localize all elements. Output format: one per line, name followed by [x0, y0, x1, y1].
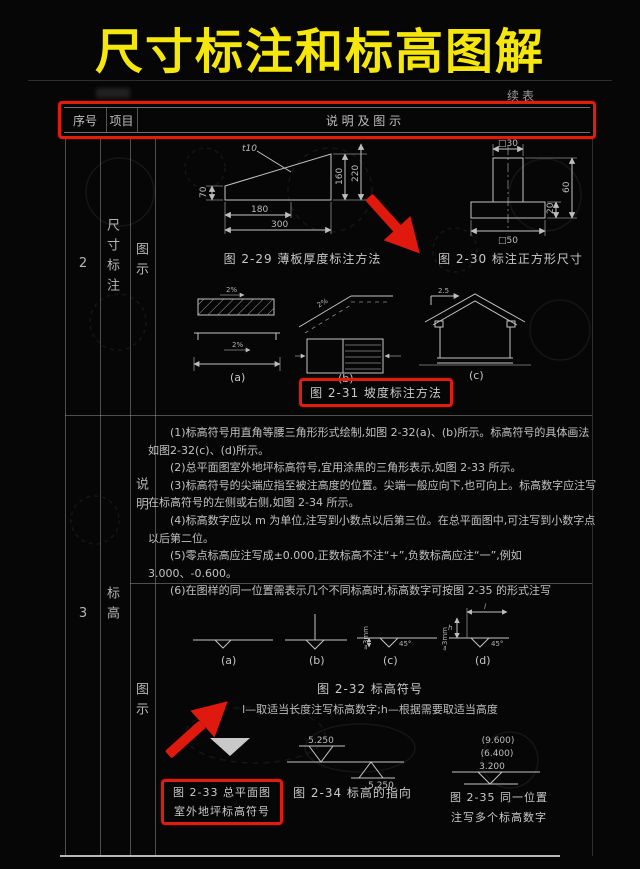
figure-2-32-caption: 图 2-32 标高符号: [290, 680, 450, 697]
multi-elevation-3: 3.200: [479, 762, 505, 772]
elevation-value-top: 5.250: [308, 736, 334, 746]
note-1: (1)标高符号用直角等腰三角形形式绘制,如图 2-32(a)、(b)所示。标高符…: [148, 424, 598, 459]
red-arrow-annotation-bottom-icon: [152, 684, 244, 772]
table-bottom-border: [60, 855, 560, 857]
row3-seq: 3: [65, 606, 101, 621]
column-header-seq: 序号: [64, 108, 106, 132]
figure-2-31b-drawing: 2% (b): [293, 281, 403, 384]
subfig-232c-label: (c): [383, 654, 398, 667]
dim-300: 300: [271, 220, 288, 230]
mm-dim-d: ≈3mm: [441, 627, 449, 651]
grid-vline-left: [65, 139, 66, 856]
note-5: (5)零点标高应注写成±0.000,正数标高不注“+”,负数标高应注“一”,例如…: [148, 547, 598, 582]
figure-2-34-drawing: 5.250 5.250: [283, 732, 408, 790]
figure-2-35-caption-line2: 注写多个标高数字: [443, 808, 555, 827]
elevation-notes: (1)标高符号用直角等腰三角形形式绘制,如图 2-32(a)、(b)所示。标高符…: [148, 424, 598, 600]
figure-2-31-caption: 图 2-31 坡度标注方法: [310, 384, 442, 401]
dim-square-30: □30: [498, 139, 518, 149]
multi-elevation-2: (6.400): [481, 749, 514, 759]
row3-item-label: 标高: [105, 586, 118, 626]
dim-20: 20: [546, 202, 556, 214]
length-dim-d: l: [484, 603, 486, 611]
column-header-item: 项目: [106, 108, 137, 132]
subfig-a-label: (a): [230, 371, 245, 383]
scan-smudge: [96, 88, 130, 98]
slope-label-2pct-a2: 2%: [232, 341, 243, 349]
note-3: (3)标高符号的尖端应指至被注高度的位置。尖端一般应向下,也可向上。标高数字应注…: [148, 477, 598, 512]
row2-item-label: 尺寸标注: [105, 218, 118, 298]
figure-2-32-drawing: (a) (b) 45° ≈3mm (c) l h ≈3mm 45° (d): [185, 598, 520, 670]
figure-2-33-caption-highlight-box: 图 2-33 总平面图 室外地坪标高符号: [161, 779, 283, 825]
slope-label-2pct-b: 2%: [316, 297, 330, 310]
dim-thickness: t10: [242, 144, 257, 154]
grid-vline-seq: [100, 139, 101, 856]
figure-2-35-caption-line1: 图 2-35 同一位置: [443, 788, 555, 807]
figure-2-31-caption-highlight-box: 图 2-31 坡度标注方法: [299, 378, 453, 407]
figure-2-33-caption-line1: 图 2-33 总平面图: [173, 783, 271, 802]
slope-label-2-5: 2.5: [438, 287, 449, 295]
subfig-232a-label: (a): [221, 654, 236, 667]
subfig-232d-label: (d): [475, 654, 491, 667]
column-header-desc: 说 明 及 图 示: [137, 108, 590, 132]
row2-seq: 2: [65, 256, 101, 271]
grid-hline-row-divider: [65, 415, 592, 416]
grid-vline-item: [130, 139, 131, 856]
title-divider: [28, 80, 612, 81]
row3-subnote-label: 说明: [134, 477, 147, 517]
slope-label-2pct-a1: 2%: [226, 286, 237, 294]
dim-180: 180: [251, 205, 268, 215]
table-header-highlight-box: 序号 项目 说 明 及 图 示: [58, 101, 596, 139]
dim-60: 60: [562, 181, 572, 193]
multi-elevation-1: (9.600): [482, 736, 515, 746]
note-4: (4)标高数字应以 m 为单位,注写到小数点以后第三位。在总平面图中,可注写到小…: [148, 512, 598, 547]
row3-subfig-label: 图示: [134, 682, 147, 722]
figure-2-35-drawing: (9.600) (6.400) 3.200: [438, 734, 550, 788]
page-title: 尺寸标注和标高图解: [0, 12, 640, 82]
note-2: (2)总平面图室外地坪标高符号,宜用涂黑的三角形表示,如图 2-33 所示。: [148, 459, 598, 477]
dim-70: 70: [199, 186, 209, 198]
dim-160: 160: [335, 168, 345, 185]
figure-2-33-caption-line2: 室外地坪标高符号: [174, 802, 270, 821]
row2-sub-label: 图示: [134, 242, 147, 282]
subfig-232b-label: (b): [309, 654, 325, 667]
figure-2-31c-drawing: 2.5 (c): [415, 278, 535, 381]
dim-square-50: □50: [498, 236, 518, 246]
angle-45-d: 45°: [491, 640, 503, 648]
figure-2-30-drawing: □30 20 60 □50: [435, 138, 590, 250]
mm-dim-c: ≈3mm: [362, 626, 370, 650]
table-header-row: 序号 项目 说 明 及 图 示: [64, 107, 590, 133]
figure-2-31a-drawing: 2% 2% (a): [180, 283, 295, 383]
figure-2-34-caption: 图 2-34 标高的指向: [290, 784, 415, 801]
document-page: 尺寸标注和标高图解 续表 序号 项目 说 明 及 图 示 2 尺寸标注 图示 3…: [0, 0, 640, 869]
red-arrow-annotation-top-icon: [352, 183, 438, 269]
angle-45-c: 45°: [399, 640, 411, 648]
figure-2-30-caption: 图 2-30 标注正方形尺寸: [428, 250, 593, 267]
figure-2-33-filled-triangle-icon: [207, 736, 253, 758]
dim-220: 220: [351, 165, 361, 182]
subfig-c-label: (c): [469, 369, 484, 381]
